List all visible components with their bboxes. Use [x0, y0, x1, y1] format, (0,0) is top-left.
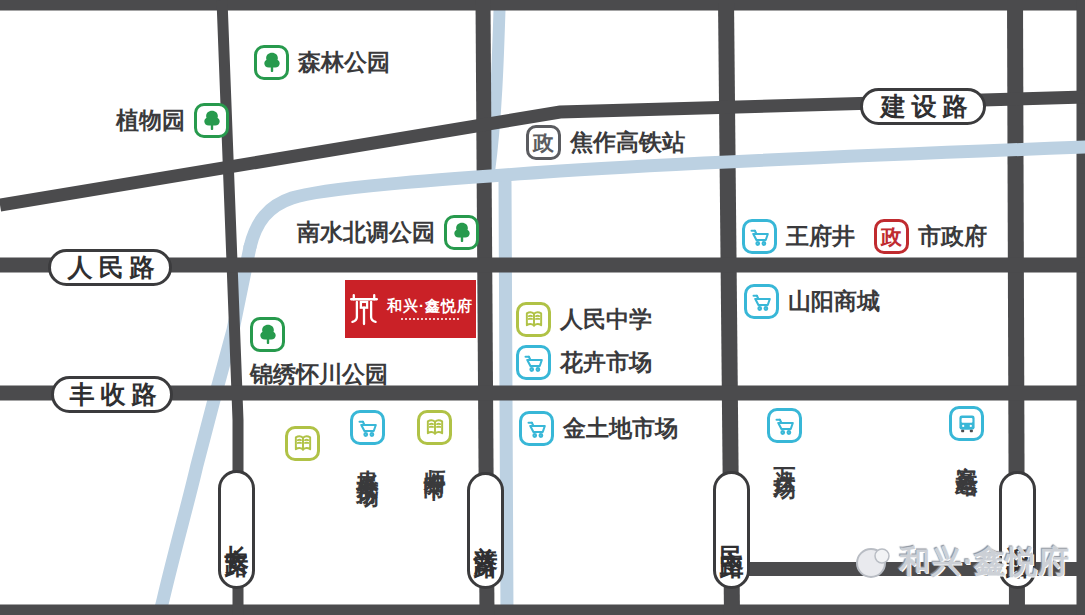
poi-label: 山阳商城	[788, 286, 880, 317]
tree-icon	[254, 45, 289, 80]
poi-nanshui-beidiao-park: 南水北调公园	[297, 215, 479, 250]
poi-label: 金土地市场	[563, 413, 678, 444]
project-name: 和兴·鑫悦府	[387, 298, 473, 315]
road-label-changan: 长安路	[218, 470, 255, 589]
poi-label: 锦绣怀川公园	[250, 359, 388, 390]
poi-bus-terminal: 客运总站	[949, 406, 984, 460]
poi-city-government: 政 市政府	[874, 219, 987, 254]
cart-icon	[742, 219, 777, 254]
book-icon	[417, 410, 452, 445]
road-label-text: 民主路	[716, 520, 748, 541]
poi-label: 森林公园	[298, 47, 390, 78]
poi-fruit-wholesale-market: 水果批发市场	[350, 410, 385, 470]
poi-wanda-plaza: 万达广场	[767, 408, 802, 462]
cart-icon	[350, 410, 385, 445]
poi-label: 市委党校	[288, 407, 318, 419]
poi-wangfujing: 王府井	[742, 219, 855, 254]
poi-label: 花卉市场	[560, 347, 652, 378]
road-label-text: 普济路	[470, 520, 502, 541]
project-logo-mark-icon	[348, 291, 380, 327]
tree-icon	[444, 215, 479, 250]
road-label-text: 长安路	[221, 519, 253, 540]
gov-icon: 政	[526, 125, 561, 160]
project-logo-text-group: 和兴·鑫悦府	[387, 298, 473, 321]
tree-icon	[194, 103, 229, 138]
road-label-text: 迎宾路	[1002, 520, 1034, 541]
gov-icon: 政	[874, 219, 909, 254]
poi-label: 植物园	[116, 105, 185, 136]
road-label-text: 丰收路	[70, 378, 163, 411]
cart-icon	[516, 345, 551, 380]
road-label-jianshe: 建设路	[860, 88, 986, 125]
poi-label: 师专附中	[420, 452, 450, 464]
poi-label: 客运总站	[952, 448, 982, 460]
watermark-logo-icon	[851, 541, 897, 583]
poi-jintudi-market: 金土地市场	[519, 411, 678, 446]
poi-botanical-garden: 植物园	[116, 103, 229, 138]
road-label-text: 建设路	[881, 90, 974, 123]
cart-icon	[744, 284, 779, 319]
poi-label: 王府井	[786, 221, 855, 252]
project-tagline-decor	[401, 318, 459, 320]
road-label-puji: 普济路	[467, 472, 504, 589]
road-label-fengshou: 丰收路	[51, 376, 173, 413]
poi-label: 万达广场	[770, 450, 800, 462]
road-label-renmin: 人民路	[48, 249, 172, 286]
poi-jiaozuo-hsr-station: 政 焦作高铁站	[526, 125, 685, 160]
poi-shanyang-mall: 山阳商城	[744, 284, 880, 319]
book-icon	[285, 426, 320, 461]
poi-label: 水果批发市场	[353, 452, 383, 470]
poi-shizhuan-affiliated-school: 师专附中	[417, 410, 452, 464]
gov-char: 政	[881, 226, 902, 247]
poi-label: 南水北调公园	[297, 217, 435, 248]
poi-forest-park: 森林公园	[254, 45, 390, 80]
bus-icon	[949, 406, 984, 441]
poi-party-school: 市委党校	[285, 407, 320, 461]
poi-label: 市政府	[918, 221, 987, 252]
cart-icon	[767, 408, 802, 443]
poi-label: 焦作高铁站	[570, 127, 685, 158]
poi-renmin-middle-school: 人民中学	[516, 302, 652, 337]
watermark-text: 和兴·鑫悦府	[899, 541, 1070, 583]
watermark: 和兴·鑫悦府	[851, 541, 1070, 583]
poi-flower-market: 花卉市场	[516, 345, 652, 380]
road-label-text: 人民路	[68, 251, 161, 284]
poi-label: 人民中学	[560, 304, 652, 335]
road-label-minzhu: 民主路	[713, 471, 750, 589]
book-icon	[516, 302, 551, 337]
project-logo-block: 和兴·鑫悦府	[345, 280, 476, 338]
gov-char: 政	[533, 132, 554, 153]
cart-icon	[519, 411, 554, 446]
tree-icon	[250, 317, 285, 352]
location-map: 建设路 人民路 丰收路 长安路 普济路 民主路 迎宾路 森林公园 植物园 政 焦…	[0, 0, 1085, 615]
